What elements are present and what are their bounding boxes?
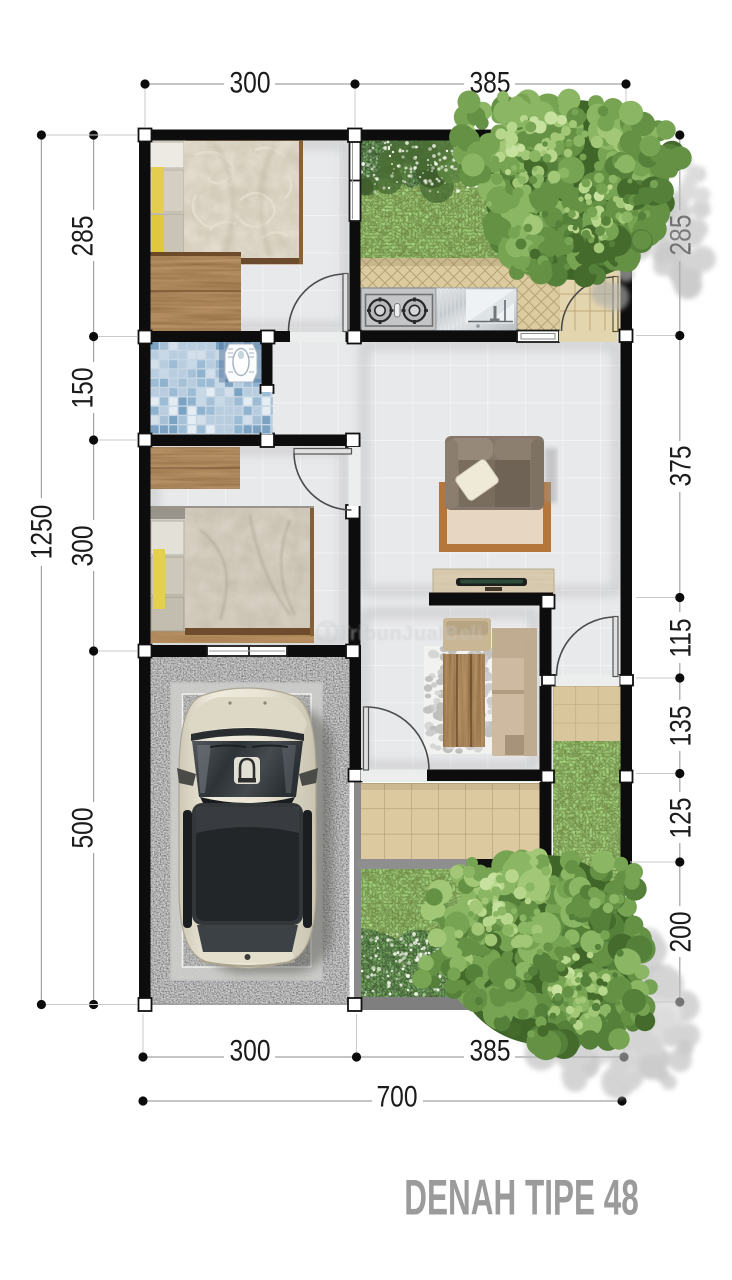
svg-text:285: 285 [65,215,99,256]
svg-text:150: 150 [65,367,99,408]
svg-text:TribunJualBeli: TribunJualBeli [338,623,483,645]
svg-text:500: 500 [65,807,99,848]
svg-text:385: 385 [469,1033,510,1067]
svg-text:115: 115 [663,618,697,657]
svg-text:125: 125 [663,797,697,838]
svg-text:375: 375 [663,445,697,486]
svg-text:1250: 1250 [24,505,58,560]
svg-text:200: 200 [663,911,697,952]
svg-text:300: 300 [229,1033,270,1067]
svg-text:DENAH TIPE 48: DENAH TIPE 48 [404,1169,638,1225]
svg-text:T: T [322,623,334,644]
svg-text:300: 300 [229,65,270,99]
svg-text:135: 135 [663,705,697,746]
svg-text:300: 300 [65,525,99,566]
svg-text:700: 700 [376,1079,417,1113]
